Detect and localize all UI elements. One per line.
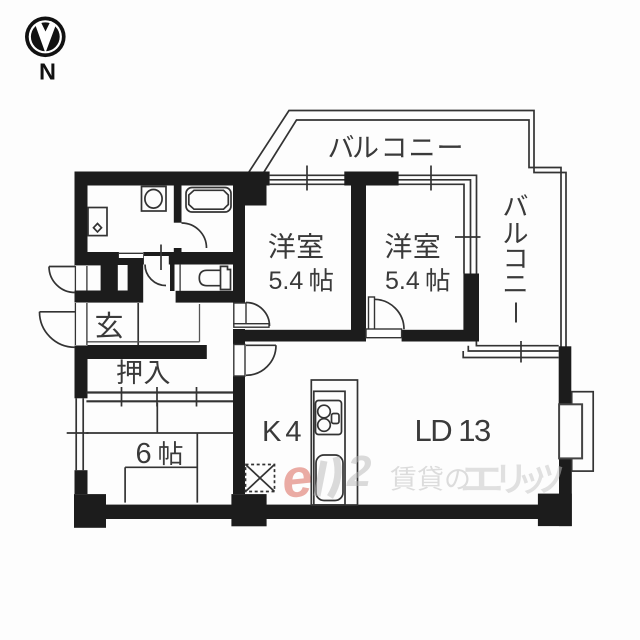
svg-text:N: N [39, 59, 56, 85]
svg-text:6: 6 [136, 438, 152, 470]
svg-text:5.4: 5.4 [385, 267, 420, 295]
svg-text:e: e [279, 447, 315, 510]
svg-text:LD 13: LD 13 [415, 413, 490, 448]
svg-text:5.4: 5.4 [269, 267, 304, 295]
svg-text:2: 2 [346, 447, 372, 496]
svg-text:K 4: K 4 [262, 416, 301, 448]
